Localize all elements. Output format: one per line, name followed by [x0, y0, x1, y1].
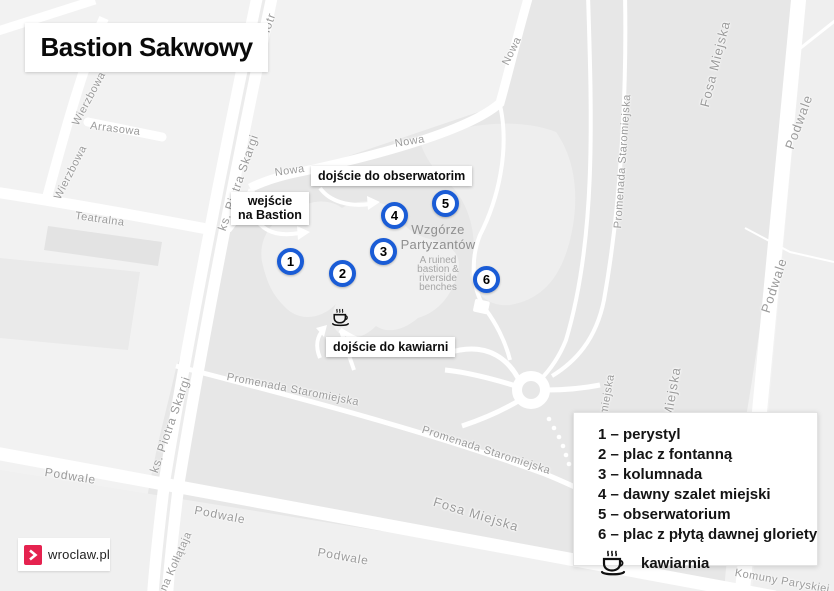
- map-infographic: Wierzbowa Wierzbowa Arrasowa Teatralna P…: [0, 0, 834, 591]
- marker-2-plac-z-fontanna: 2: [329, 260, 356, 287]
- poi-desc-line4: benches: [394, 283, 482, 292]
- callout-entrance: wejście na Bastion: [231, 192, 309, 225]
- marker-1-perystyl: 1: [277, 248, 304, 275]
- poi-name-line1: Wzgórze: [394, 222, 482, 237]
- callout-observatory: dojście do obserwatorim: [311, 166, 472, 186]
- coffee-cup-icon: [330, 308, 351, 327]
- callout-cafe: dojście do kawiarni: [326, 337, 455, 357]
- legend-item-4: 4 – dawny szalet miejski: [598, 485, 809, 505]
- marker-6-plac-gloriety: 6: [473, 266, 500, 293]
- marker-4-dawny-szalet: 4: [381, 202, 408, 229]
- callout-entrance-line2: na Bastion: [238, 209, 302, 223]
- legend-cafe-label: kawiarnia: [641, 555, 709, 572]
- wroclaw-logo: wroclaw.pl: [18, 538, 110, 571]
- legend-item-5: 5 – obserwatorium: [598, 505, 809, 525]
- coffee-cup-icon: [598, 550, 628, 576]
- marker-5-obserwatorium: 5: [432, 190, 459, 217]
- legend: 1 – perystyl 2 – plac z fontanną 3 – kol…: [573, 412, 818, 566]
- poi-name-line2: Partyzantów: [394, 237, 482, 252]
- logo-text: wroclaw.pl: [48, 547, 110, 562]
- marker-3-kolumnada: 3: [370, 238, 397, 265]
- legend-cafe-row: kawiarnia: [598, 550, 809, 576]
- chevron-right-icon: [27, 548, 39, 562]
- legend-item-1: 1 – perystyl: [598, 425, 809, 445]
- poi-desc: A ruined bastion & riverside benches: [394, 256, 482, 292]
- legend-item-6: 6 – plac z płytą dawnej gloriety: [598, 525, 809, 545]
- poi-wzgorze-partyzantow: Wzgórze Partyzantów A ruined bastion & r…: [394, 222, 482, 292]
- legend-item-2: 2 – plac z fontanną: [598, 445, 809, 465]
- legend-item-3: 3 – kolumnada: [598, 465, 809, 485]
- logo-square: [24, 545, 42, 565]
- page-title: Bastion Sakwowy: [40, 32, 252, 63]
- callout-entrance-line1: wejście: [238, 195, 302, 209]
- title-box: Bastion Sakwowy: [25, 23, 268, 72]
